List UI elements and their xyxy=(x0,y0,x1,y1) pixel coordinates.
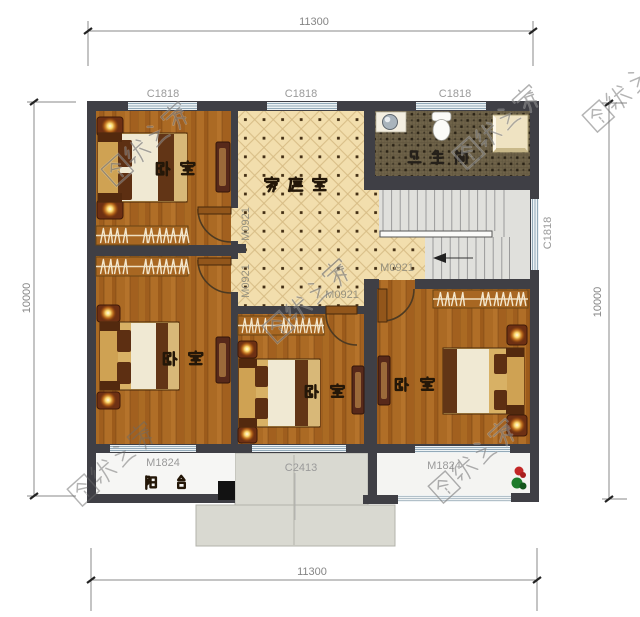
svg-text:10000: 10000 xyxy=(592,287,604,318)
svg-text:C1818: C1818 xyxy=(542,217,554,249)
svg-text:10000: 10000 xyxy=(21,283,33,314)
svg-text:M0921: M0921 xyxy=(380,262,414,274)
svg-text:M0921: M0921 xyxy=(325,289,359,301)
svg-text:C1818: C1818 xyxy=(285,88,317,100)
svg-text:C1818: C1818 xyxy=(147,88,179,100)
svg-text:M1824: M1824 xyxy=(146,457,180,469)
svg-text:11300: 11300 xyxy=(297,566,327,578)
svg-text:C1818: C1818 xyxy=(439,88,471,100)
svg-text:M0921: M0921 xyxy=(240,264,252,298)
svg-text:11300: 11300 xyxy=(299,16,329,28)
svg-text:M0921: M0921 xyxy=(240,207,252,241)
svg-text:C2413: C2413 xyxy=(285,462,317,474)
